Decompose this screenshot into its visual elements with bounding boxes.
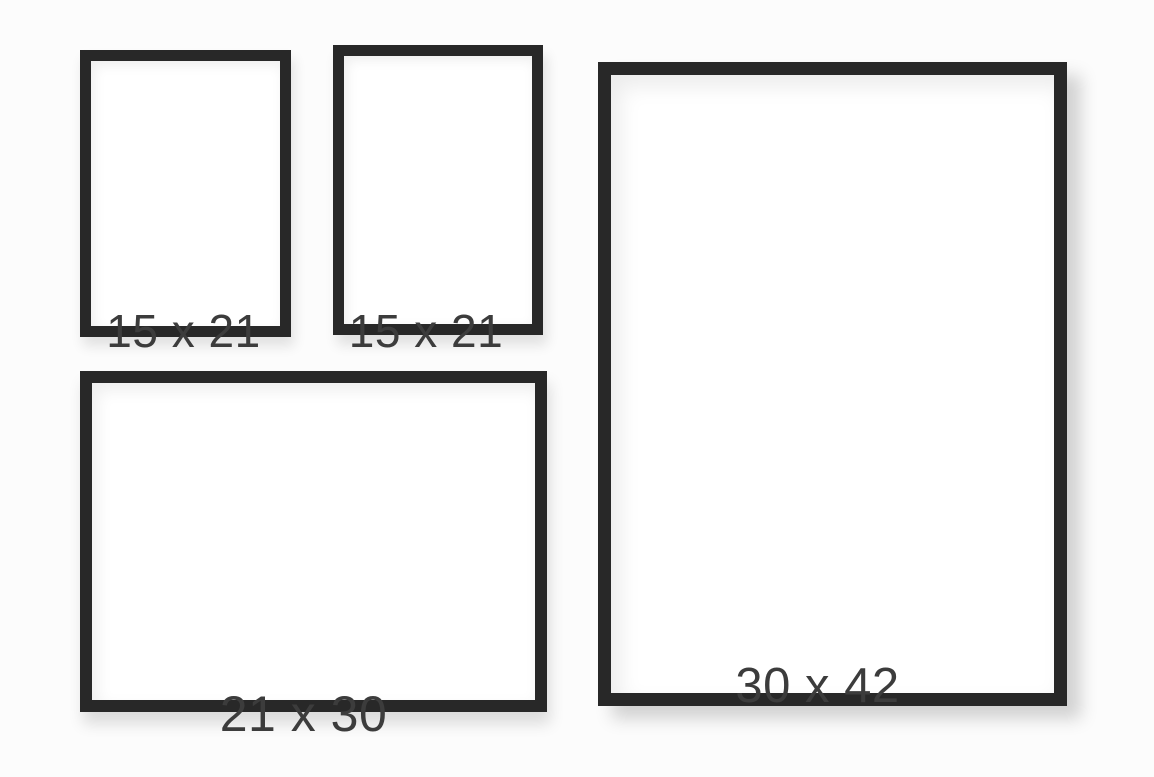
size-label: 21 x 30 xyxy=(82,682,525,747)
frame-size-comparison: 15 x 21 (A5) 15 x 21 (A5) 30 x 42 (A3) 2… xyxy=(0,0,1154,777)
frame-a3-label: 30 x 42 (A3) xyxy=(596,528,1039,777)
frame-a4-label: 21 x 30 (A4) xyxy=(82,552,525,777)
size-label: 15 x 21 xyxy=(89,302,278,362)
size-label: 30 x 42 xyxy=(596,655,1039,719)
frame-a3: 30 x 42 (A3) xyxy=(598,62,1067,706)
frame-a5-right: 15 x 21 (A5) xyxy=(333,45,543,335)
size-label: 15 x 21 xyxy=(332,302,520,362)
frame-a4: 21 x 30 (A4) xyxy=(80,371,547,712)
frame-a5-left: 15 x 21 (A5) xyxy=(80,50,291,337)
